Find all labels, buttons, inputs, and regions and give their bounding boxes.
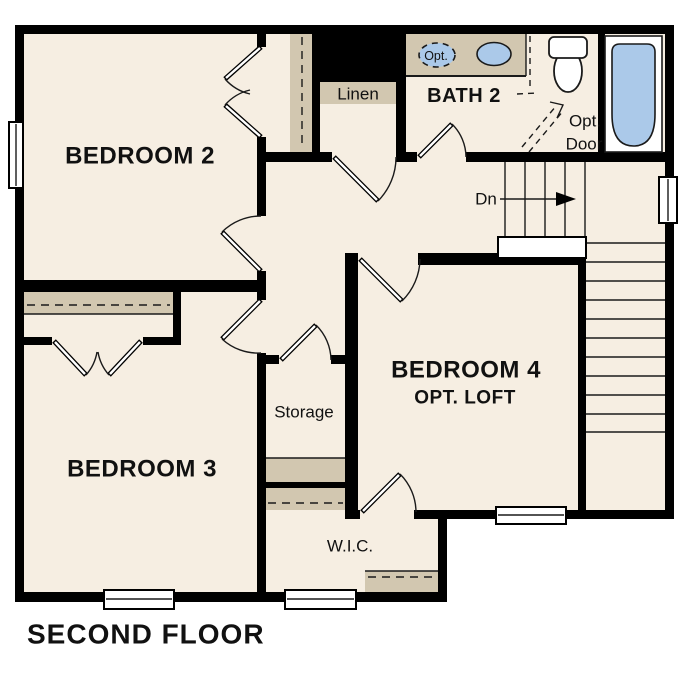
page-title: SECOND FLOOR — [27, 619, 265, 650]
wic-label: W.I.C. — [327, 537, 373, 556]
stairs-down-label: Dn — [475, 190, 497, 209]
storage-label: Storage — [274, 403, 334, 422]
bathtub-icon — [605, 36, 662, 152]
opt-sink-label: Opt. — [424, 49, 448, 63]
bedroom4-floor — [345, 253, 586, 519]
bedroom4-sublabel: OPT. LOFT — [414, 388, 516, 409]
opt-door-label-1: Opt. — [569, 112, 601, 131]
wic-upper-shelf — [266, 488, 345, 510]
stair-landing — [498, 237, 586, 258]
bedroom2-closet-shelf — [290, 34, 312, 152]
floor-plan-page: BEDROOM 2 BEDROOM 3 BEDROOM 4 OPT. LOFT … — [0, 0, 687, 687]
opt-door-label-2: Door — [566, 135, 603, 154]
window-stair-right — [659, 177, 677, 223]
bedroom3-label: BEDROOM 3 — [67, 456, 217, 483]
bedroom4-label: BEDROOM 4 — [391, 357, 541, 384]
stair-strip-floor — [586, 162, 665, 519]
window-wic-bottom — [285, 590, 356, 609]
wic-lower-shelf — [365, 571, 438, 592]
linen-label: Linen — [337, 85, 379, 104]
storage-shelf — [266, 458, 345, 482]
sink-icon — [477, 43, 511, 66]
floor-plan-drawing: BEDROOM 2 BEDROOM 3 BEDROOM 4 OPT. LOFT … — [0, 0, 687, 687]
bedroom3-closet-shelf — [24, 292, 173, 314]
window-bedroom3-bottom — [104, 590, 174, 609]
bedroom2-label: BEDROOM 2 — [65, 143, 215, 170]
window-bedroom2-left — [9, 122, 23, 188]
bath2-label: BATH 2 — [427, 85, 501, 107]
window-bedroom4-bottom — [496, 507, 566, 524]
